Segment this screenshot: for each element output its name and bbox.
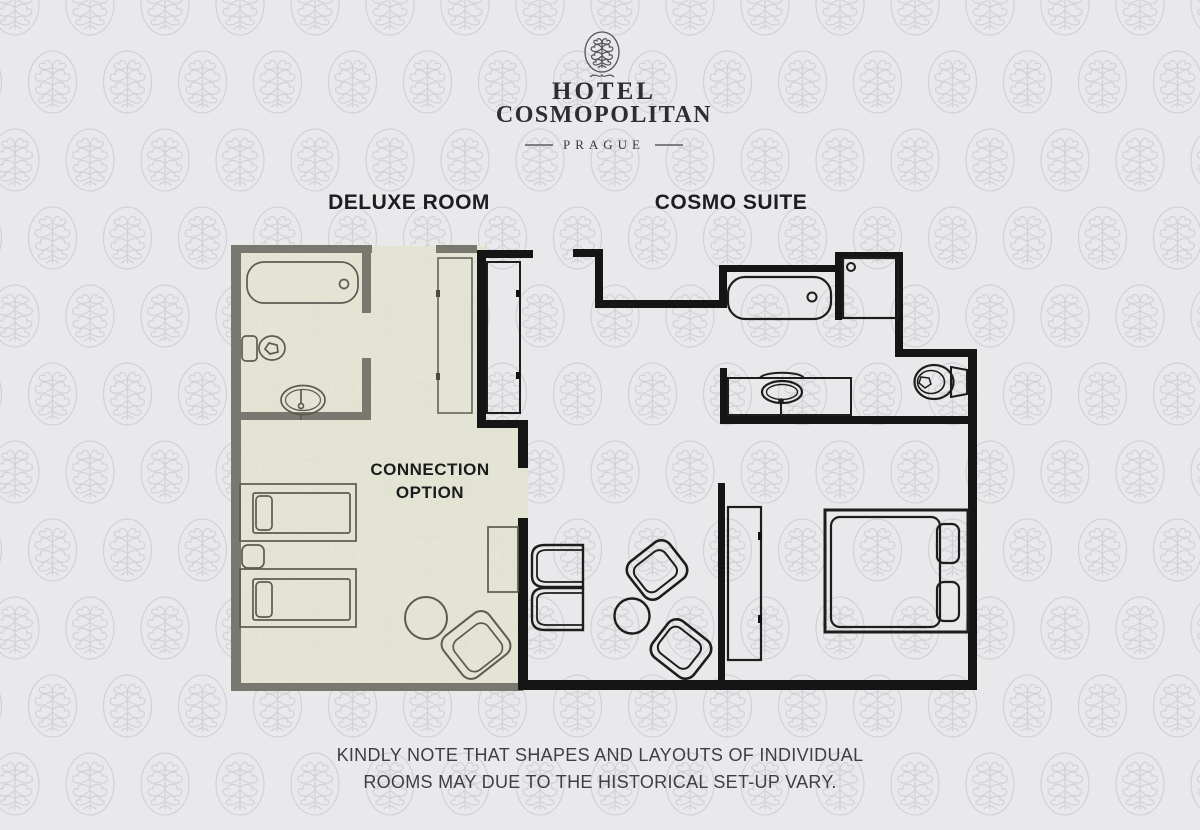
footnote: KINDLY NOTE THAT SHAPES AND LAYOUTS OF I… <box>300 742 900 796</box>
floor-plan-page: HOTEL COSMOPOLITAN PRAGUE DELUXE ROOM CO… <box>0 0 1200 830</box>
deluxe-room-label: DELUXE ROOM <box>259 191 559 215</box>
logo-city-word: PRAGUE <box>563 137 645 153</box>
cosmo-suite-label: COSMO SUITE <box>581 191 881 215</box>
footnote-line-2: ROOMS MAY DUE TO THE HISTORICAL SET-UP V… <box>300 769 900 796</box>
connection-line-1: CONNECTION <box>330 458 530 481</box>
prague-rule-right <box>655 144 683 146</box>
logo-cosmopolitan-word: COSMOPOLITAN <box>444 102 764 128</box>
connection-option-label: CONNECTION OPTION <box>330 458 530 504</box>
connection-line-2: OPTION <box>330 481 530 504</box>
prague-rule-left <box>525 144 553 146</box>
logo-city-row: PRAGUE <box>454 137 754 153</box>
footnote-line-1: KINDLY NOTE THAT SHAPES AND LAYOUTS OF I… <box>300 742 900 769</box>
